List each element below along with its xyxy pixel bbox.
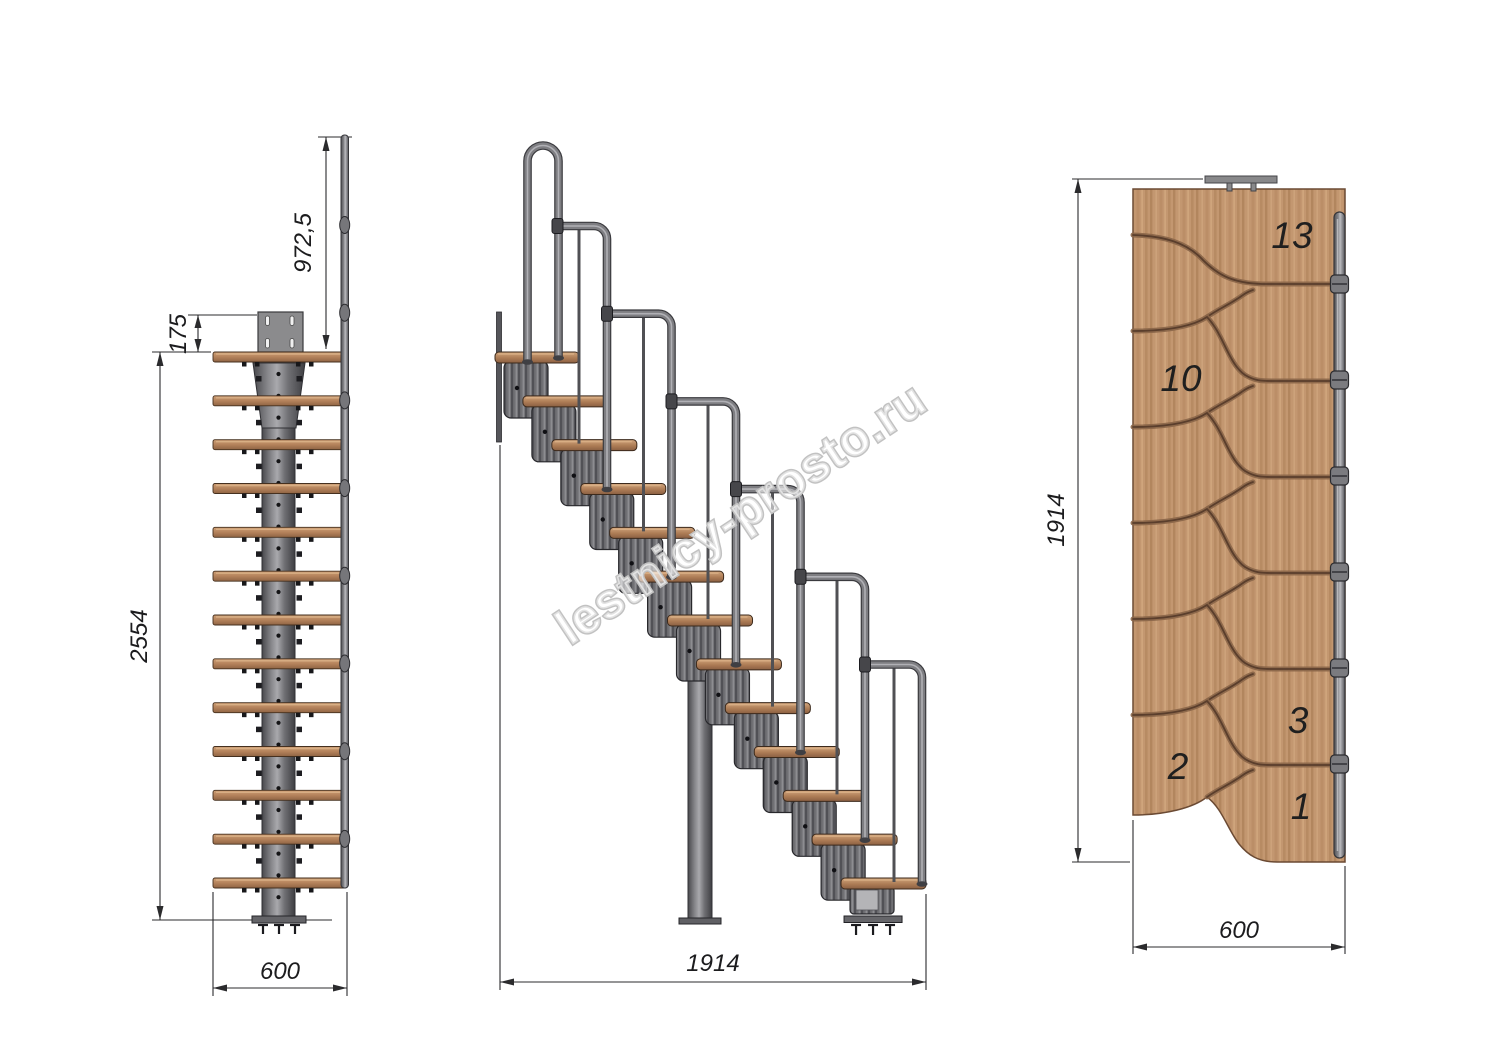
column-nub xyxy=(256,770,262,776)
tread-bolt xyxy=(296,625,301,630)
column-nub xyxy=(297,595,303,601)
step-label-13: 13 xyxy=(1271,215,1313,256)
rail-connector-bump xyxy=(340,304,350,321)
tread-bolt xyxy=(242,493,247,498)
tread-bolt xyxy=(255,888,260,893)
column-nub xyxy=(297,507,303,513)
module-bolt xyxy=(572,473,576,477)
column-nub xyxy=(297,770,303,776)
tread-bolt xyxy=(242,844,247,849)
column-nub xyxy=(256,551,262,557)
tread-bolt xyxy=(309,450,314,455)
leg-foot xyxy=(860,837,871,843)
column-nub xyxy=(297,639,303,645)
step-label-10: 10 xyxy=(1160,358,1202,399)
tread-bolt xyxy=(255,625,260,630)
rail-connector-bump xyxy=(340,743,350,760)
rail-clamp xyxy=(860,657,871,672)
tread-bolt xyxy=(309,713,314,718)
tread-bolt xyxy=(309,888,314,893)
tread-bolt xyxy=(242,362,247,367)
column-base-plate xyxy=(252,916,306,923)
tread-bolt xyxy=(255,406,260,411)
module-bolt xyxy=(515,386,519,390)
dim-plate-offset-value: 175 xyxy=(165,313,192,354)
rail-clamp xyxy=(666,394,677,409)
column-dot xyxy=(276,852,280,856)
rail-connector-bump xyxy=(340,480,350,497)
tread-bolt xyxy=(296,581,301,586)
handrail-tube xyxy=(528,146,559,363)
column-dot xyxy=(276,634,280,638)
leg-foot xyxy=(522,359,533,365)
column-dot xyxy=(276,372,280,376)
tread-bolt xyxy=(255,493,260,498)
module-panel xyxy=(856,890,878,910)
handrail-tube xyxy=(528,146,559,363)
column-nub xyxy=(297,464,303,470)
module-bolt xyxy=(658,605,662,609)
tread-bolt xyxy=(255,713,260,718)
tread-bolt xyxy=(309,406,314,411)
column-dot xyxy=(276,721,280,725)
tread-bolt xyxy=(255,537,260,542)
front-elevation-view: 972,5 175 2554 600 xyxy=(126,135,352,996)
module-bolt xyxy=(687,649,691,653)
tread-bolt xyxy=(309,800,314,805)
dim-front-width-value: 600 xyxy=(260,958,301,985)
tread-bolt xyxy=(242,450,247,455)
column-nub xyxy=(256,727,262,733)
tread-bolt xyxy=(309,844,314,849)
step-label-1: 1 xyxy=(1291,786,1312,827)
column-dot xyxy=(276,808,280,812)
dim-total-height-value: 2554 xyxy=(126,609,153,663)
module-bolt xyxy=(745,736,749,740)
tread-bolt xyxy=(309,493,314,498)
column-nub xyxy=(297,376,303,382)
tread-bolt xyxy=(309,362,314,367)
tread-bolt xyxy=(242,581,247,586)
leg-foot xyxy=(602,487,613,493)
column-dot xyxy=(276,590,280,594)
leg-foot xyxy=(731,662,742,668)
module-bolt xyxy=(543,430,547,434)
module-bolt xyxy=(803,824,807,828)
column-dot xyxy=(276,459,280,463)
tread-bolt xyxy=(242,800,247,805)
rail-clamp xyxy=(795,569,806,584)
column-dot xyxy=(276,677,280,681)
dim-plan-width-value: 600 xyxy=(1219,917,1260,944)
leg-foot xyxy=(795,750,806,756)
handrail-tube-highlight xyxy=(528,146,559,363)
tread-bolt xyxy=(255,581,260,586)
column-dot xyxy=(276,873,280,877)
column-nub xyxy=(297,683,303,689)
rail-connector-bump xyxy=(340,217,350,234)
column-dot xyxy=(276,546,280,550)
column-nub xyxy=(256,814,262,820)
rail-connector-bump xyxy=(340,830,350,847)
plan-view: 1914 600 13 10 3 2 1 xyxy=(1043,176,1349,954)
tread-bolt xyxy=(255,450,260,455)
step-label-3: 3 xyxy=(1288,700,1309,741)
tread-bolt xyxy=(242,669,247,674)
column-nub xyxy=(256,858,262,864)
handrail-post xyxy=(341,135,349,888)
tread-bolt xyxy=(309,669,314,674)
dim-plate-offset: 175 xyxy=(165,313,257,354)
tread-bolt xyxy=(255,669,260,674)
tread-bolt xyxy=(309,537,314,542)
column-dot xyxy=(276,786,280,790)
column-dot xyxy=(276,830,280,834)
tread-bolt xyxy=(242,713,247,718)
tread-bolt xyxy=(296,669,301,674)
side-elevation-view: 1914 xyxy=(495,146,928,991)
tread-bolt xyxy=(242,756,247,761)
rail-connector-bump xyxy=(340,567,350,584)
column-nub xyxy=(297,551,303,557)
tread-bolt xyxy=(309,625,314,630)
leg-foot xyxy=(553,355,564,361)
tread-bolt xyxy=(296,888,301,893)
rail-clamp xyxy=(552,219,563,234)
tread-bolt xyxy=(296,800,301,805)
rail-connector-bump xyxy=(340,655,350,672)
tread-bolt xyxy=(309,756,314,761)
tread-bolt xyxy=(309,581,314,586)
column-dot xyxy=(276,416,280,420)
tread-bolt xyxy=(242,888,247,893)
module-bolt xyxy=(832,868,836,872)
base-plate xyxy=(844,916,902,923)
column-nub xyxy=(256,420,262,426)
staircase-technical-drawing: 972,5 175 2554 600 xyxy=(0,0,1500,1061)
column-nub xyxy=(297,420,303,426)
wall-bracket-plate xyxy=(497,312,502,442)
column-dot xyxy=(276,503,280,507)
tread-bolt xyxy=(296,537,301,542)
column-dot xyxy=(276,895,280,899)
anchor-bolts xyxy=(258,925,300,934)
leg-foot xyxy=(917,881,928,887)
column-nub xyxy=(256,639,262,645)
module-bolt xyxy=(601,517,605,521)
drawing-canvas: 972,5 175 2554 600 xyxy=(0,0,1500,1061)
module-bolt xyxy=(774,780,778,784)
tread-stack-outline xyxy=(1133,189,1345,862)
tread-bolt xyxy=(296,713,301,718)
tread-bolt xyxy=(242,537,247,542)
module-bolt xyxy=(716,693,720,697)
tread-bolt xyxy=(255,800,260,805)
tread-bolt xyxy=(255,844,260,849)
dim-side-run-value: 1914 xyxy=(686,950,739,977)
dim-rail-height-value: 972,5 xyxy=(290,212,317,273)
tread-bolt xyxy=(255,756,260,761)
tread-bolt xyxy=(296,362,301,367)
column-nub xyxy=(297,727,303,733)
rail-clamp xyxy=(602,306,613,321)
column-nub xyxy=(256,683,262,689)
column-nub xyxy=(297,858,303,864)
tread-bolt xyxy=(296,844,301,849)
rail-connector-bump xyxy=(340,392,350,409)
column-nub xyxy=(256,507,262,513)
step-label-2: 2 xyxy=(1167,746,1189,787)
column-nub xyxy=(297,814,303,820)
tread-bolt xyxy=(296,756,301,761)
column-dot xyxy=(276,764,280,768)
tread-bolt xyxy=(242,625,247,630)
column-nub xyxy=(256,464,262,470)
wall-mount-plate xyxy=(258,312,303,352)
tread-bolt xyxy=(296,406,301,411)
column-nub xyxy=(256,376,262,382)
tread-bolt xyxy=(255,362,260,367)
tread-bolt xyxy=(242,406,247,411)
column-nub xyxy=(256,595,262,601)
tread-bolt xyxy=(296,450,301,455)
dim-plan-run-value: 1914 xyxy=(1043,493,1070,546)
tread-bolt xyxy=(296,493,301,498)
